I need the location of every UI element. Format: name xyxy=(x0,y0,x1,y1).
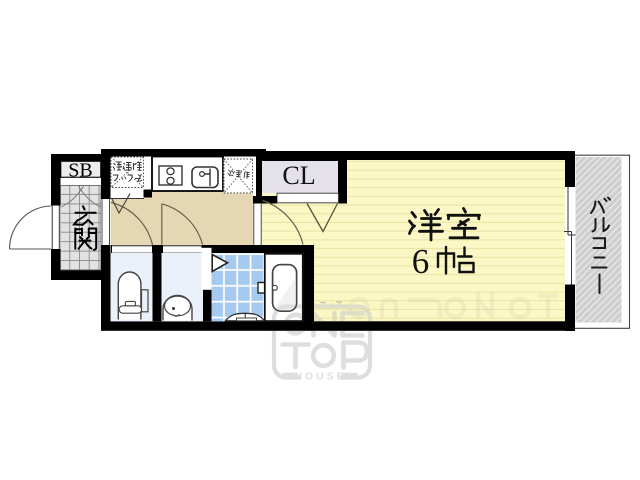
svg-text:SB: SB xyxy=(68,160,92,182)
svg-text:CL: CL xyxy=(282,161,315,190)
svg-text:HOUSE: HOUSE xyxy=(294,371,346,383)
svg-text:6: 6 xyxy=(412,242,430,281)
